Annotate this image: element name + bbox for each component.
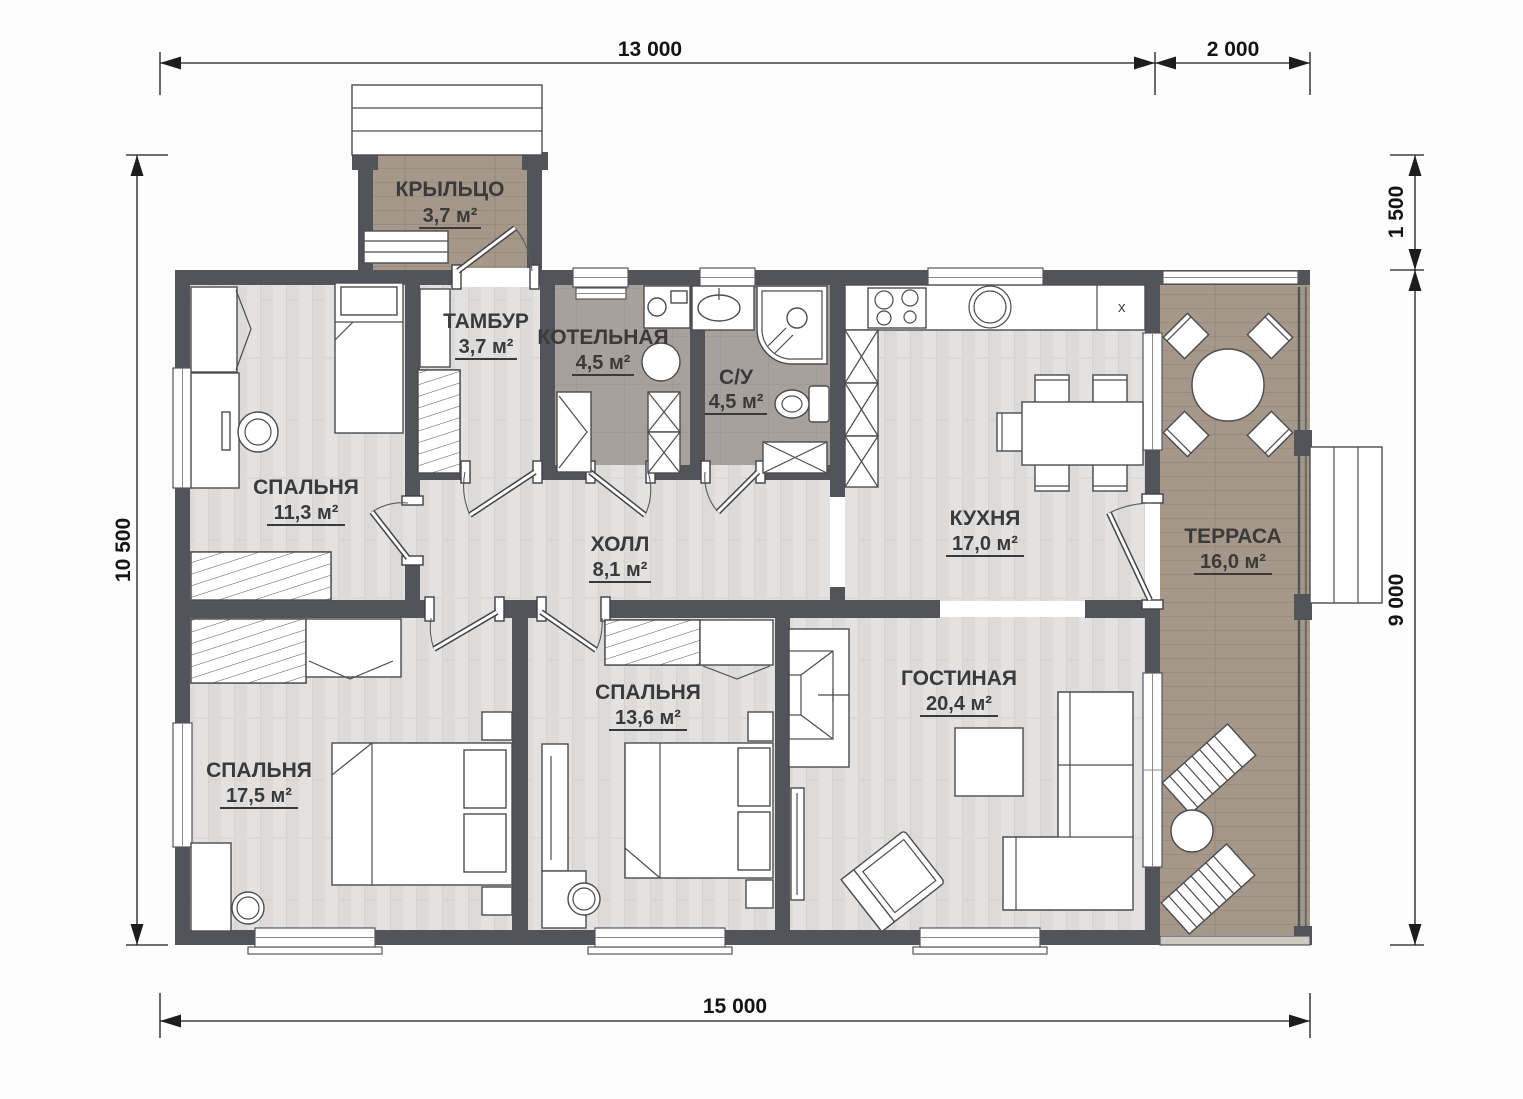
washing-machine-icon (557, 392, 591, 472)
nightstand-icon (746, 880, 773, 908)
terrace-steps (1310, 447, 1382, 603)
wardrobe-icon (306, 619, 401, 679)
stool-icon (568, 883, 600, 915)
dim-top-secondary: 2 000 (1207, 38, 1260, 61)
terrace-side-table-icon (1171, 810, 1213, 852)
stool-icon (232, 892, 264, 924)
room-area-bedroom-top: 11,3 м² (274, 502, 339, 524)
kitchen-tall-cabinet-icon (845, 330, 878, 487)
window-kitchen-terrace (1143, 333, 1162, 450)
window-kitchen-top (928, 268, 1043, 287)
double-bed-icon (625, 743, 773, 878)
room-name-terrace: ТЕРРАСА (1184, 525, 1281, 548)
window-boiler-top (573, 268, 628, 299)
room-area-bedroom-mid: 13,6 м² (615, 707, 681, 729)
sink-icon (692, 286, 754, 330)
window-bedroom-mid-bottom (588, 928, 732, 954)
double-bed-icon (332, 743, 512, 885)
desk-icon (191, 373, 239, 488)
nightstand-icon (482, 712, 512, 740)
room-area-bathroom: 4,5 м² (709, 391, 764, 413)
room-name-living: ГОСТИНАЯ (901, 667, 1017, 690)
room-name-hall: ХОЛЛ (591, 533, 650, 556)
dim-left: 10 500 (112, 518, 135, 582)
tv-icon (791, 788, 804, 900)
dim-right-main: 9 000 (1385, 574, 1408, 627)
room-name-bedroom-top: СПАЛЬНЯ (253, 476, 359, 499)
bench-icon (364, 231, 448, 263)
single-bed-icon (335, 283, 403, 433)
window-living-bottom (913, 928, 1047, 954)
window-bedroom-top-left (173, 368, 192, 488)
room-name-bathroom: С/У (719, 366, 754, 389)
counter-mark: x (1118, 299, 1126, 316)
porch-steps (352, 85, 542, 155)
boiler-equipment-icon (644, 286, 690, 328)
fireplace-icon (789, 629, 849, 767)
nightstand-icon (748, 712, 773, 741)
window-living-terrace (1143, 673, 1162, 867)
hanger-closet-icon (605, 620, 700, 665)
hanger-closet-icon (191, 619, 306, 683)
coffee-table-icon (955, 728, 1023, 796)
room-name-bedroom-left: СПАЛЬНЯ (206, 759, 312, 782)
room-name-boiler: КОТЕЛЬНАЯ (537, 326, 668, 349)
room-name-kitchen: КУХНЯ (950, 507, 1021, 530)
room-area-vestibule: 3,7 м² (459, 336, 514, 358)
room-area-living: 20,4 м² (926, 693, 992, 715)
room-name-porch: КРЫЛЬЦО (396, 178, 505, 201)
dim-top-main: 13 000 (618, 38, 682, 61)
hanger-closet-icon (191, 552, 331, 600)
floor-plan-canvas: 13 000 2 000 15 000 10 500 1 500 9 000 (0, 0, 1523, 1099)
window-bedroom-left-bottom (248, 928, 382, 954)
room-area-bedroom-left: 17,5 м² (226, 785, 292, 807)
nightstand-icon (482, 887, 512, 915)
stove-icon (868, 288, 926, 328)
window-bedroom-left-left (173, 723, 192, 847)
terrace-table-icon (1192, 349, 1264, 421)
room-area-terrace: 16,0 м² (1200, 551, 1266, 573)
storage-cabinet-icon (648, 392, 680, 473)
desk-icon (191, 843, 231, 931)
floor-plan: 13 000 2 000 15 000 10 500 1 500 9 000 (0, 0, 1523, 1099)
desk-chair-icon (238, 412, 278, 452)
coat-closet-icon (418, 370, 460, 473)
shower-icon (757, 286, 827, 364)
room-area-hall: 8,1 м² (593, 559, 648, 581)
dim-bottom: 15 000 (703, 995, 767, 1018)
room-name-vestibule: ТАМБУР (443, 310, 529, 333)
room-area-kitchen: 17,0 м² (952, 533, 1018, 555)
window-bathroom-top (700, 268, 755, 287)
room-name-bedroom-mid: СПАЛЬНЯ (595, 681, 701, 704)
bathroom-cabinet-icon (763, 442, 827, 473)
room-area-porch: 3,7 м² (423, 205, 478, 227)
room-area-boiler: 4,5 м² (576, 352, 631, 374)
dim-right-top: 1 500 (1385, 186, 1408, 239)
